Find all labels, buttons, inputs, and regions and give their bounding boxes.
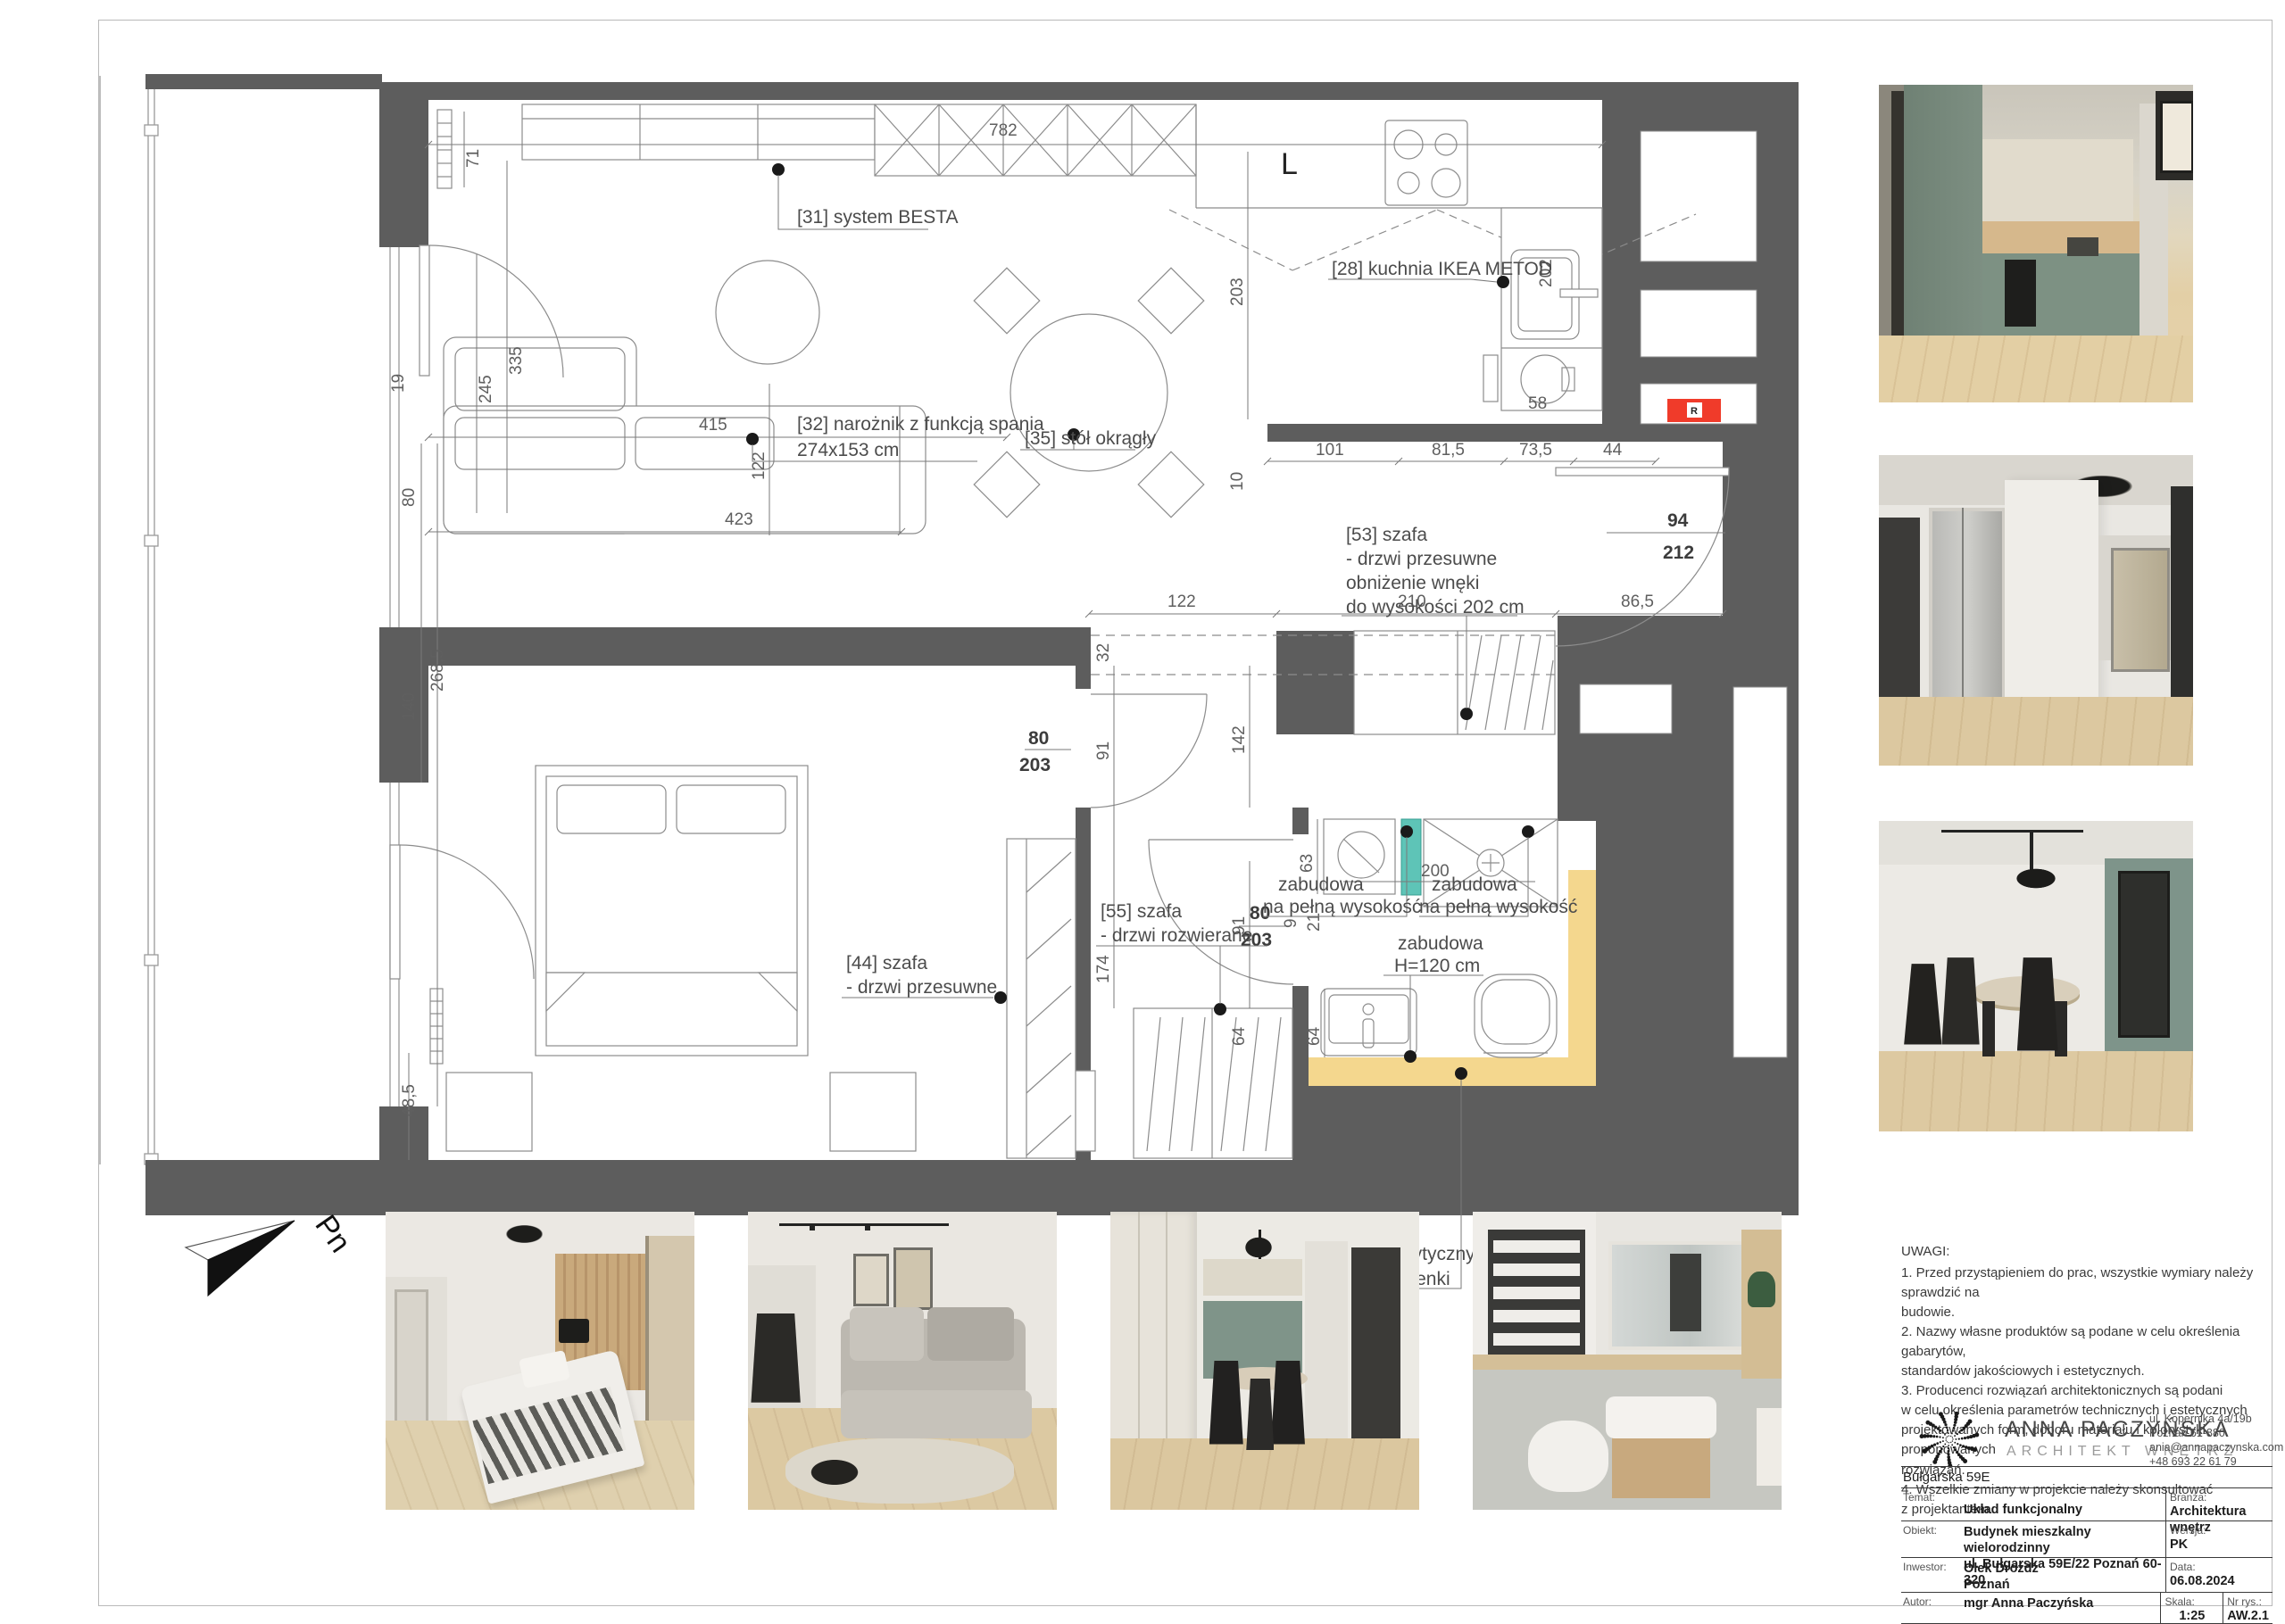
svg-text:zabudowa: zabudowa	[1398, 933, 1483, 954]
obiekt-label: Obiekt:	[1903, 1524, 1958, 1554]
notes-line: 1. Przed przystąpieniem do prac, wszystk…	[1901, 1264, 2285, 1303]
svg-text:[32] narożnik z funkcją spania: [32] narożnik z funkcją spania	[797, 414, 1044, 435]
basin	[1321, 989, 1417, 1056]
svg-text:64: 64	[1305, 1026, 1324, 1046]
radiator-living	[437, 110, 452, 188]
wersja-value: PK	[2170, 1537, 2269, 1553]
inwestor-label: Inwestor:	[1903, 1561, 1958, 1589]
branza-label: Branża:	[2170, 1491, 2269, 1504]
svg-text:203: 203	[1019, 755, 1051, 775]
svg-text:73,5: 73,5	[1519, 441, 1552, 460]
brand-block: ANNA PACZYŃSKA ARCHITEKT WNĘTRZ ul. Kope…	[1908, 1412, 2273, 1465]
svg-text:335: 335	[507, 346, 526, 375]
render-living-room	[748, 1212, 1057, 1510]
svg-text:142: 142	[1230, 725, 1249, 754]
svg-text:101: 101	[1316, 441, 1344, 460]
notes-line: standardów jakościowych i estetycznych.	[1901, 1362, 2285, 1381]
skala-label: Skala:	[2165, 1595, 2219, 1608]
svg-text:64: 64	[1230, 1026, 1249, 1046]
nr-label: Nr rys.:	[2227, 1595, 2269, 1608]
svg-text:19: 19	[389, 374, 408, 393]
svg-text:94: 94	[1667, 510, 1689, 531]
render-bathroom	[1473, 1212, 1782, 1510]
render-dining	[1879, 821, 2193, 1131]
render-kitchen	[1879, 85, 2193, 402]
electrical-panel: R	[1667, 399, 1721, 422]
svg-text:71: 71	[464, 149, 483, 168]
wersja-label: Wersja:	[2170, 1524, 2269, 1537]
svg-text:[35] stół okrągły: [35] stół okrągły	[1025, 428, 1157, 449]
svg-text:44: 44	[1603, 441, 1623, 460]
title-block: Bułgarska 59E Temat: Układ funkcjonalny …	[1901, 1466, 2273, 1624]
notes-title: UWAGI:	[1901, 1242, 2285, 1262]
temat-value: Układ funkcjonalny	[1964, 1502, 2082, 1518]
wardrobe-55	[1134, 1008, 1292, 1158]
render-dining-kitchen	[1110, 1212, 1419, 1510]
svg-text:203: 203	[1228, 278, 1247, 306]
notes-line: budowie.	[1901, 1303, 2285, 1322]
north-arrow: Pn	[186, 1209, 357, 1296]
dining-table	[974, 268, 1204, 518]
svg-text:R: R	[1691, 406, 1698, 417]
autor-label: Autor:	[1903, 1595, 1958, 1620]
north-label: Pn	[308, 1209, 357, 1259]
svg-text:L: L	[1281, 147, 1298, 181]
svg-text:- drzwi przesuwne: - drzwi przesuwne	[1346, 549, 1497, 569]
radiator-bedroom	[430, 989, 443, 1064]
brand-address1: ul. Kopernika 4a/19b	[2149, 1412, 2283, 1426]
svg-text:9: 9	[1282, 918, 1300, 928]
svg-text:zabudowa: zabudowa	[1432, 874, 1517, 895]
inwestor-value-1: Olek Drożdż	[1964, 1562, 2039, 1576]
svg-text:[53] szafa: [53] szafa	[1346, 525, 1427, 545]
balcony-door-bedroom	[390, 845, 534, 979]
brand-address2: Poznań 61-880	[2149, 1426, 2283, 1440]
svg-text:[28] kuchnia IKEA METOD: [28] kuchnia IKEA METOD	[1332, 259, 1552, 279]
svg-text:10: 10	[1228, 472, 1247, 491]
svg-text:245: 245	[477, 375, 495, 403]
wardrobe-44	[1007, 839, 1076, 1158]
inwestor-value-2: Poznań	[1964, 1578, 2010, 1592]
obiekt-value-1: Budynek mieszkalny wielorodzinny	[1964, 1525, 2091, 1555]
svg-text:32: 32	[1094, 643, 1113, 662]
nr-value: AW.2.1	[2227, 1608, 2269, 1624]
temat-label: Temat:	[1903, 1491, 1958, 1518]
skala-value: 1:25	[2165, 1608, 2219, 1624]
svg-text:na pełną wysokość: na pełną wysokość	[1419, 897, 1577, 917]
besta-unit	[522, 104, 875, 160]
bed	[446, 766, 1095, 1151]
svg-text:do wysokości 202 cm: do wysokości 202 cm	[1346, 597, 1525, 617]
svg-text:- drzwi rozwierane: - drzwi rozwierane	[1101, 925, 1252, 946]
svg-text:415: 415	[699, 416, 727, 435]
svg-text:268,5: 268,5	[428, 649, 447, 692]
svg-text:80: 80	[1028, 728, 1049, 749]
svg-text:na pełną wysokość: na pełną wysokość	[1263, 897, 1421, 917]
svg-text:81,5: 81,5	[1432, 441, 1465, 460]
svg-text:- drzwi przesuwne: - drzwi przesuwne	[846, 977, 997, 998]
render-hallway	[1879, 455, 2193, 766]
svg-text:obniżenie wnęki: obniżenie wnęki	[1346, 573, 1479, 593]
brand-email: ania@annapaczynska.com	[2149, 1440, 2283, 1454]
svg-text:140: 140	[400, 692, 419, 721]
svg-text:91: 91	[1094, 742, 1113, 760]
balcony	[100, 76, 399, 1164]
svg-text:423: 423	[725, 510, 753, 529]
svg-text:48,5: 48,5	[400, 1084, 419, 1117]
svg-text:86,5: 86,5	[1621, 592, 1654, 611]
render-bedroom	[386, 1212, 694, 1510]
svg-text:[55] szafa: [55] szafa	[1101, 901, 1182, 922]
notes-line: 2. Nazwy własne produktów są podane w ce…	[1901, 1322, 2285, 1362]
svg-text:[31] system BESTA: [31] system BESTA	[797, 207, 959, 228]
svg-text:782: 782	[989, 121, 1018, 140]
project-name: Bułgarska 59E	[1901, 1467, 1992, 1487]
sink-and-washer	[1483, 208, 1602, 410]
svg-text:H=120 cm: H=120 cm	[1394, 956, 1480, 976]
tall-cabinets	[875, 104, 1196, 176]
svg-text:58: 58	[1528, 394, 1547, 413]
notes-line: 3. Producenci rozwiązań architektoniczny…	[1901, 1381, 2285, 1401]
svg-text:174: 174	[1094, 955, 1113, 983]
pouf	[716, 261, 819, 364]
logo-spiral-icon	[1908, 1412, 1998, 1467]
svg-text:63: 63	[1298, 854, 1317, 873]
toilet	[1475, 974, 1557, 1057]
svg-text:212: 212	[1663, 543, 1694, 563]
svg-text:zabudowa: zabudowa	[1278, 874, 1364, 895]
brand-contact: ul. Kopernika 4a/19b Poznań 61-880 ania@…	[2149, 1412, 2283, 1469]
svg-text:122: 122	[1167, 592, 1196, 611]
svg-text:[44] szafa: [44] szafa	[846, 953, 927, 974]
data-value: 06.08.2024	[2170, 1573, 2269, 1589]
autor-value: mgr Anna Paczyńska	[1964, 1595, 2093, 1620]
svg-text:274x153 cm: 274x153 cm	[797, 440, 899, 460]
data-label: Data:	[2170, 1561, 2269, 1573]
svg-text:80: 80	[400, 488, 419, 507]
